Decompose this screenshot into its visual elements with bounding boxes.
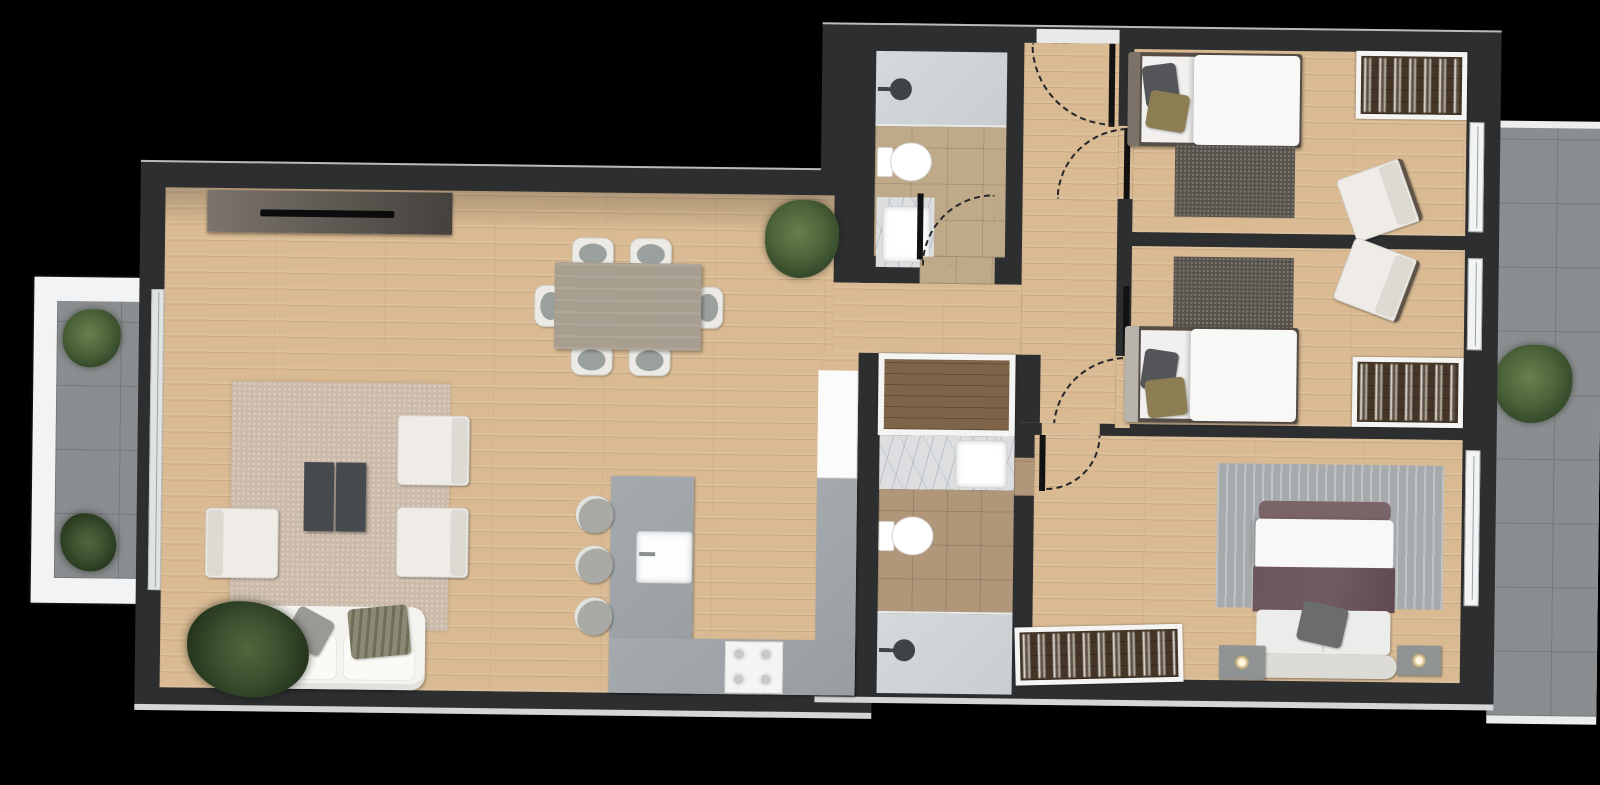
bath2-sink — [955, 440, 1008, 489]
chair-seat — [579, 243, 607, 264]
coffee-table — [303, 462, 334, 531]
living-armchair — [397, 415, 470, 486]
bedroom2-window — [1467, 258, 1483, 350]
bath1-showerhead-icon — [890, 78, 912, 100]
window-mullion — [1474, 262, 1476, 347]
coffee-table — [335, 462, 366, 531]
master-nightstand — [1397, 645, 1441, 676]
armchair-back — [450, 510, 467, 576]
wall-bath1-left — [834, 168, 875, 282]
bath2-floor — [878, 489, 1015, 615]
kitchen-sink — [636, 531, 693, 584]
slider-rail — [154, 292, 159, 587]
living-armchair — [396, 507, 469, 578]
window-mullion — [1471, 456, 1474, 600]
bedroom2-wardrobe-clothes — [1360, 364, 1456, 421]
dining-table — [554, 262, 702, 351]
entry-threshold — [1036, 29, 1119, 44]
terrace-floor — [1486, 127, 1600, 716]
cooktop-burner-icon — [759, 648, 773, 662]
floorplan-render — [0, 0, 1600, 785]
master-nightstand — [1219, 645, 1265, 680]
bath2-closet — [884, 359, 1010, 431]
bedroom1-pillow-olive — [1145, 89, 1191, 133]
bath2-showerhead-icon — [893, 639, 915, 661]
bedroom1-rug — [1174, 145, 1295, 218]
chair-seat — [637, 243, 665, 264]
cooktop-burner-icon — [759, 673, 773, 687]
bedroom2-rug — [1173, 257, 1294, 330]
bedroom1-wardrobe-clothes — [1364, 58, 1460, 113]
living-armchair — [205, 508, 279, 579]
cooktop-burner-icon — [732, 672, 746, 686]
bedroom1-duvet — [1193, 55, 1300, 146]
bath1-toilet-icon — [890, 142, 932, 182]
sofa-throw-olive — [347, 604, 411, 659]
window-mullion — [1476, 127, 1478, 228]
kitchen-cooktop — [725, 641, 784, 694]
chair-seat — [635, 349, 663, 370]
master-bed-duvet — [1255, 519, 1394, 571]
bedroom1-window — [1468, 122, 1484, 232]
bath2-door-gap — [1014, 458, 1034, 496]
kitchen-faucet-icon — [639, 552, 655, 556]
wall-bath2-right — [1015, 355, 1041, 423]
master-bed-bench — [1247, 653, 1397, 679]
chair-seat — [577, 349, 605, 370]
master-window — [1464, 450, 1481, 606]
bedroom1-headboard — [1127, 52, 1140, 146]
kitchen-fridge-unit — [817, 370, 858, 478]
bedroom2-duvet — [1190, 329, 1297, 422]
cooktop-burner-icon — [732, 647, 746, 661]
floorplan-stage — [0, 0, 1600, 785]
lamp-icon — [1234, 654, 1250, 670]
master-wardrobe-clothes — [1023, 631, 1176, 678]
bedroom2-pillow-olive — [1144, 376, 1188, 418]
armchair-back — [451, 418, 468, 484]
lamp-icon — [1411, 652, 1427, 668]
master-door-gap — [1042, 423, 1100, 436]
bedroom2-headboard — [1124, 326, 1139, 422]
floor-corridor — [833, 282, 1022, 354]
armchair-back — [207, 510, 224, 576]
